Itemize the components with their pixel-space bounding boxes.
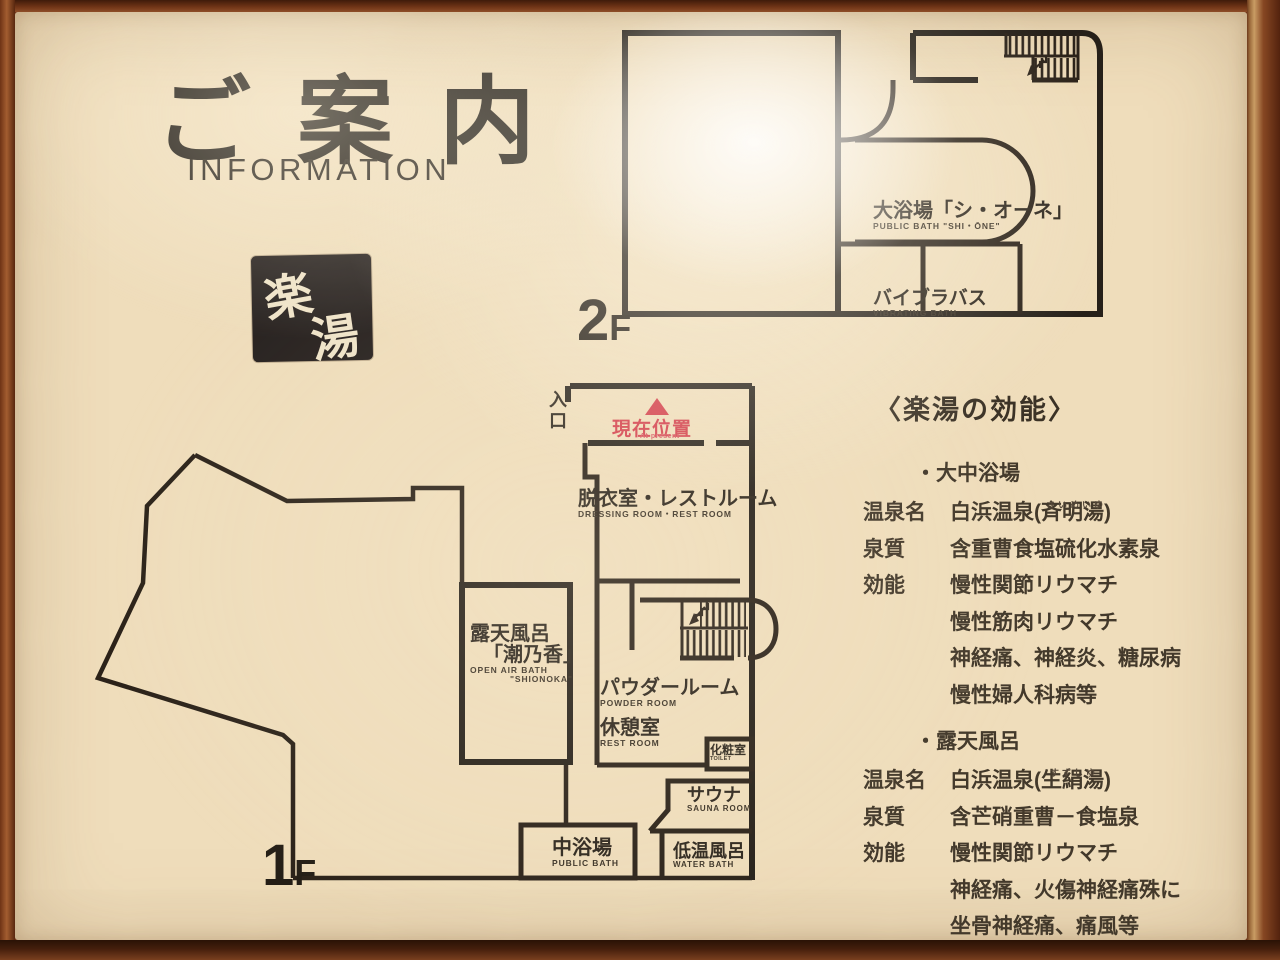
room-label-powder-room: パウダールーム POWDER ROOM <box>600 678 739 708</box>
efficacy-row: 神経痛、神経炎、糖尿病 <box>860 641 1160 678</box>
room-label-sauna: サウナ SAUNA ROOM <box>687 786 751 813</box>
efficacy-row: 温泉名 白浜温泉(斉明湯)さいめいゆ <box>860 495 1160 532</box>
efficacy-heading: 〈楽湯の効能〉 <box>874 388 1160 427</box>
wooden-frame-left <box>0 0 15 960</box>
page-subtitle: INFORMATION <box>187 152 451 188</box>
room-label-dressing: 脱衣室・レストルーム DRESSING ROOM・REST ROOM <box>578 489 777 519</box>
efficacy-row: 泉質 含重曹食塩硫化水素泉 <box>860 532 1160 569</box>
efficacy-panel: 〈楽湯の効能〉 ・大中浴場 温泉名 白浜温泉(斉明湯)さいめいゆ 泉質 含重曹食… <box>860 388 1160 946</box>
efficacy-row: 泉質 含芒硝重曹－食塩泉 <box>860 800 1160 837</box>
stairs-2f <box>1004 33 1078 80</box>
entrance-label: 入口 <box>544 390 570 432</box>
floor1-plan <box>80 370 810 915</box>
efficacy-section1-bullet: ・大中浴場 <box>915 457 1160 491</box>
efficacy-section2-bullet: ・露天風呂 <box>915 725 1160 759</box>
efficacy-row: 温泉名 白浜温泉(生絹湯)すずしゆ <box>860 763 1160 800</box>
current-location-sublabel: At present <box>640 433 680 440</box>
stairs-1f <box>680 600 776 658</box>
room-label-public-bath: 中浴場 PUBLIC BATH <box>552 838 619 868</box>
sign-board: ご案内 INFORMATION 楽 湯 <box>15 12 1247 940</box>
furigana: すずしゆ <box>1050 755 1098 792</box>
room-label-rest-room: 休憩室 REST ROOM <box>600 718 660 748</box>
efficacy-row: 効能 慢性関節リウマチ <box>860 568 1160 605</box>
efficacy-row: 慢性婦人科病等 <box>860 678 1160 715</box>
wooden-frame-right <box>1247 0 1280 960</box>
wooden-frame-top <box>0 0 1280 12</box>
rakuyu-stamp-logo: 楽 湯 <box>251 254 373 362</box>
floor2-tag: 2F <box>577 287 631 354</box>
furigana: さいめいゆ <box>1046 487 1106 524</box>
room-label-water-bath: 低温風呂 WATER BATH <box>673 842 745 869</box>
room-label-vibrating-bath: バイブラバス VIBRATING BATH <box>873 289 987 318</box>
floor1-walls <box>98 386 752 880</box>
information-board-photo: ご案内 INFORMATION 楽 湯 <box>0 0 1280 960</box>
floor1-tag: 1F <box>262 832 316 899</box>
efficacy-row: 坐骨神経痛、痛風等 <box>860 909 1160 946</box>
room-label-open-air-bath: 露天風呂 「潮乃香」 OPEN AIR BATH "SHIONOKA" <box>470 624 583 684</box>
stamp-char-bottom: 湯 <box>306 295 364 371</box>
efficacy-row: 効能 慢性関節リウマチ <box>860 836 1160 873</box>
room-label-main-bath: 大浴場「シ・オーネ」 PUBLIC BATH "SHI・ŌNE" <box>873 201 1073 231</box>
current-location-triangle-icon <box>645 398 669 415</box>
floor2-plan <box>560 30 1135 360</box>
efficacy-row: 慢性筋肉リウマチ <box>860 605 1160 642</box>
room-label-toilet: 化粧室 TOILET <box>710 744 746 762</box>
efficacy-row: 神経痛、火傷神経痛殊に <box>860 873 1160 910</box>
